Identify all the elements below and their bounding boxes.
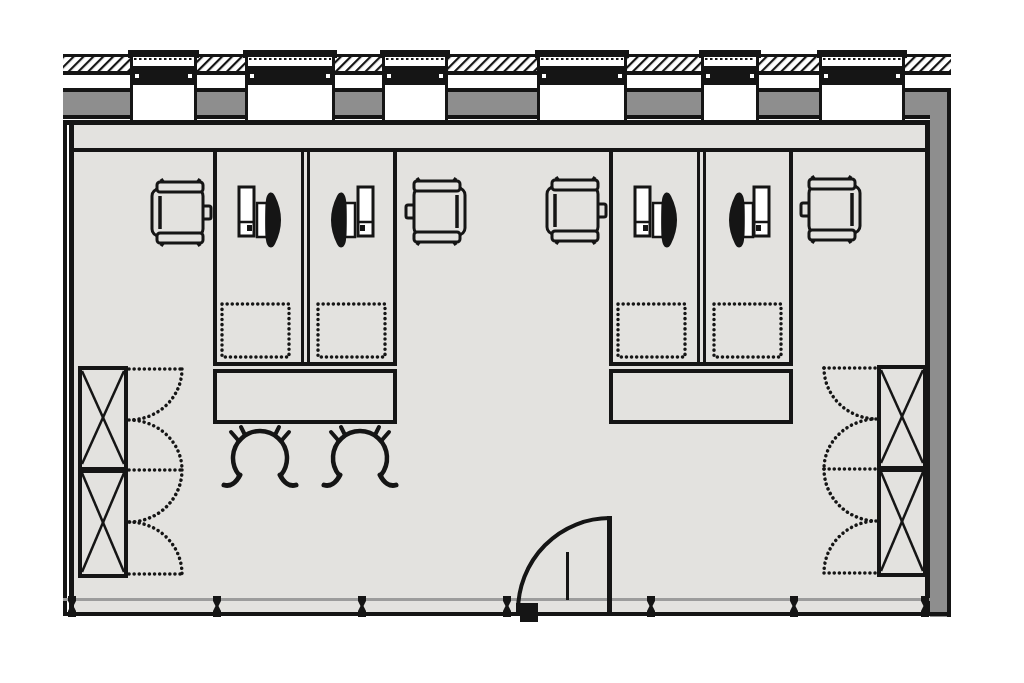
left-wall [63, 120, 74, 612]
facade-column [128, 50, 199, 120]
desk-bottom-edge [213, 362, 397, 366]
desk-edge [393, 150, 397, 366]
floor-plan-canvas [0, 0, 1024, 683]
room-top-wall-line [63, 120, 930, 125]
facade-column [699, 50, 761, 120]
pc-tower [754, 187, 769, 236]
counter-line [74, 148, 925, 152]
door-leaf [607, 516, 612, 612]
pc-tower [358, 187, 373, 236]
pc-tower [635, 187, 650, 236]
office-chair [801, 176, 860, 243]
facade-column [535, 50, 629, 120]
facade-column [243, 50, 337, 120]
office-chair [152, 179, 211, 246]
side-table [215, 371, 395, 422]
door-threshold [516, 603, 538, 613]
desk-divider [301, 150, 304, 366]
facade-column [380, 50, 450, 120]
door-stop [566, 552, 569, 600]
floor-plan [0, 0, 1024, 683]
right-wall [925, 88, 951, 617]
pc-tower [239, 187, 254, 236]
office-chair [406, 178, 465, 245]
facade-wall-top [63, 50, 951, 125]
desk-edge [213, 150, 217, 366]
office-chair [547, 177, 606, 244]
desk-divider [307, 150, 310, 366]
door-threshold [520, 613, 538, 622]
facade-column [817, 50, 907, 120]
